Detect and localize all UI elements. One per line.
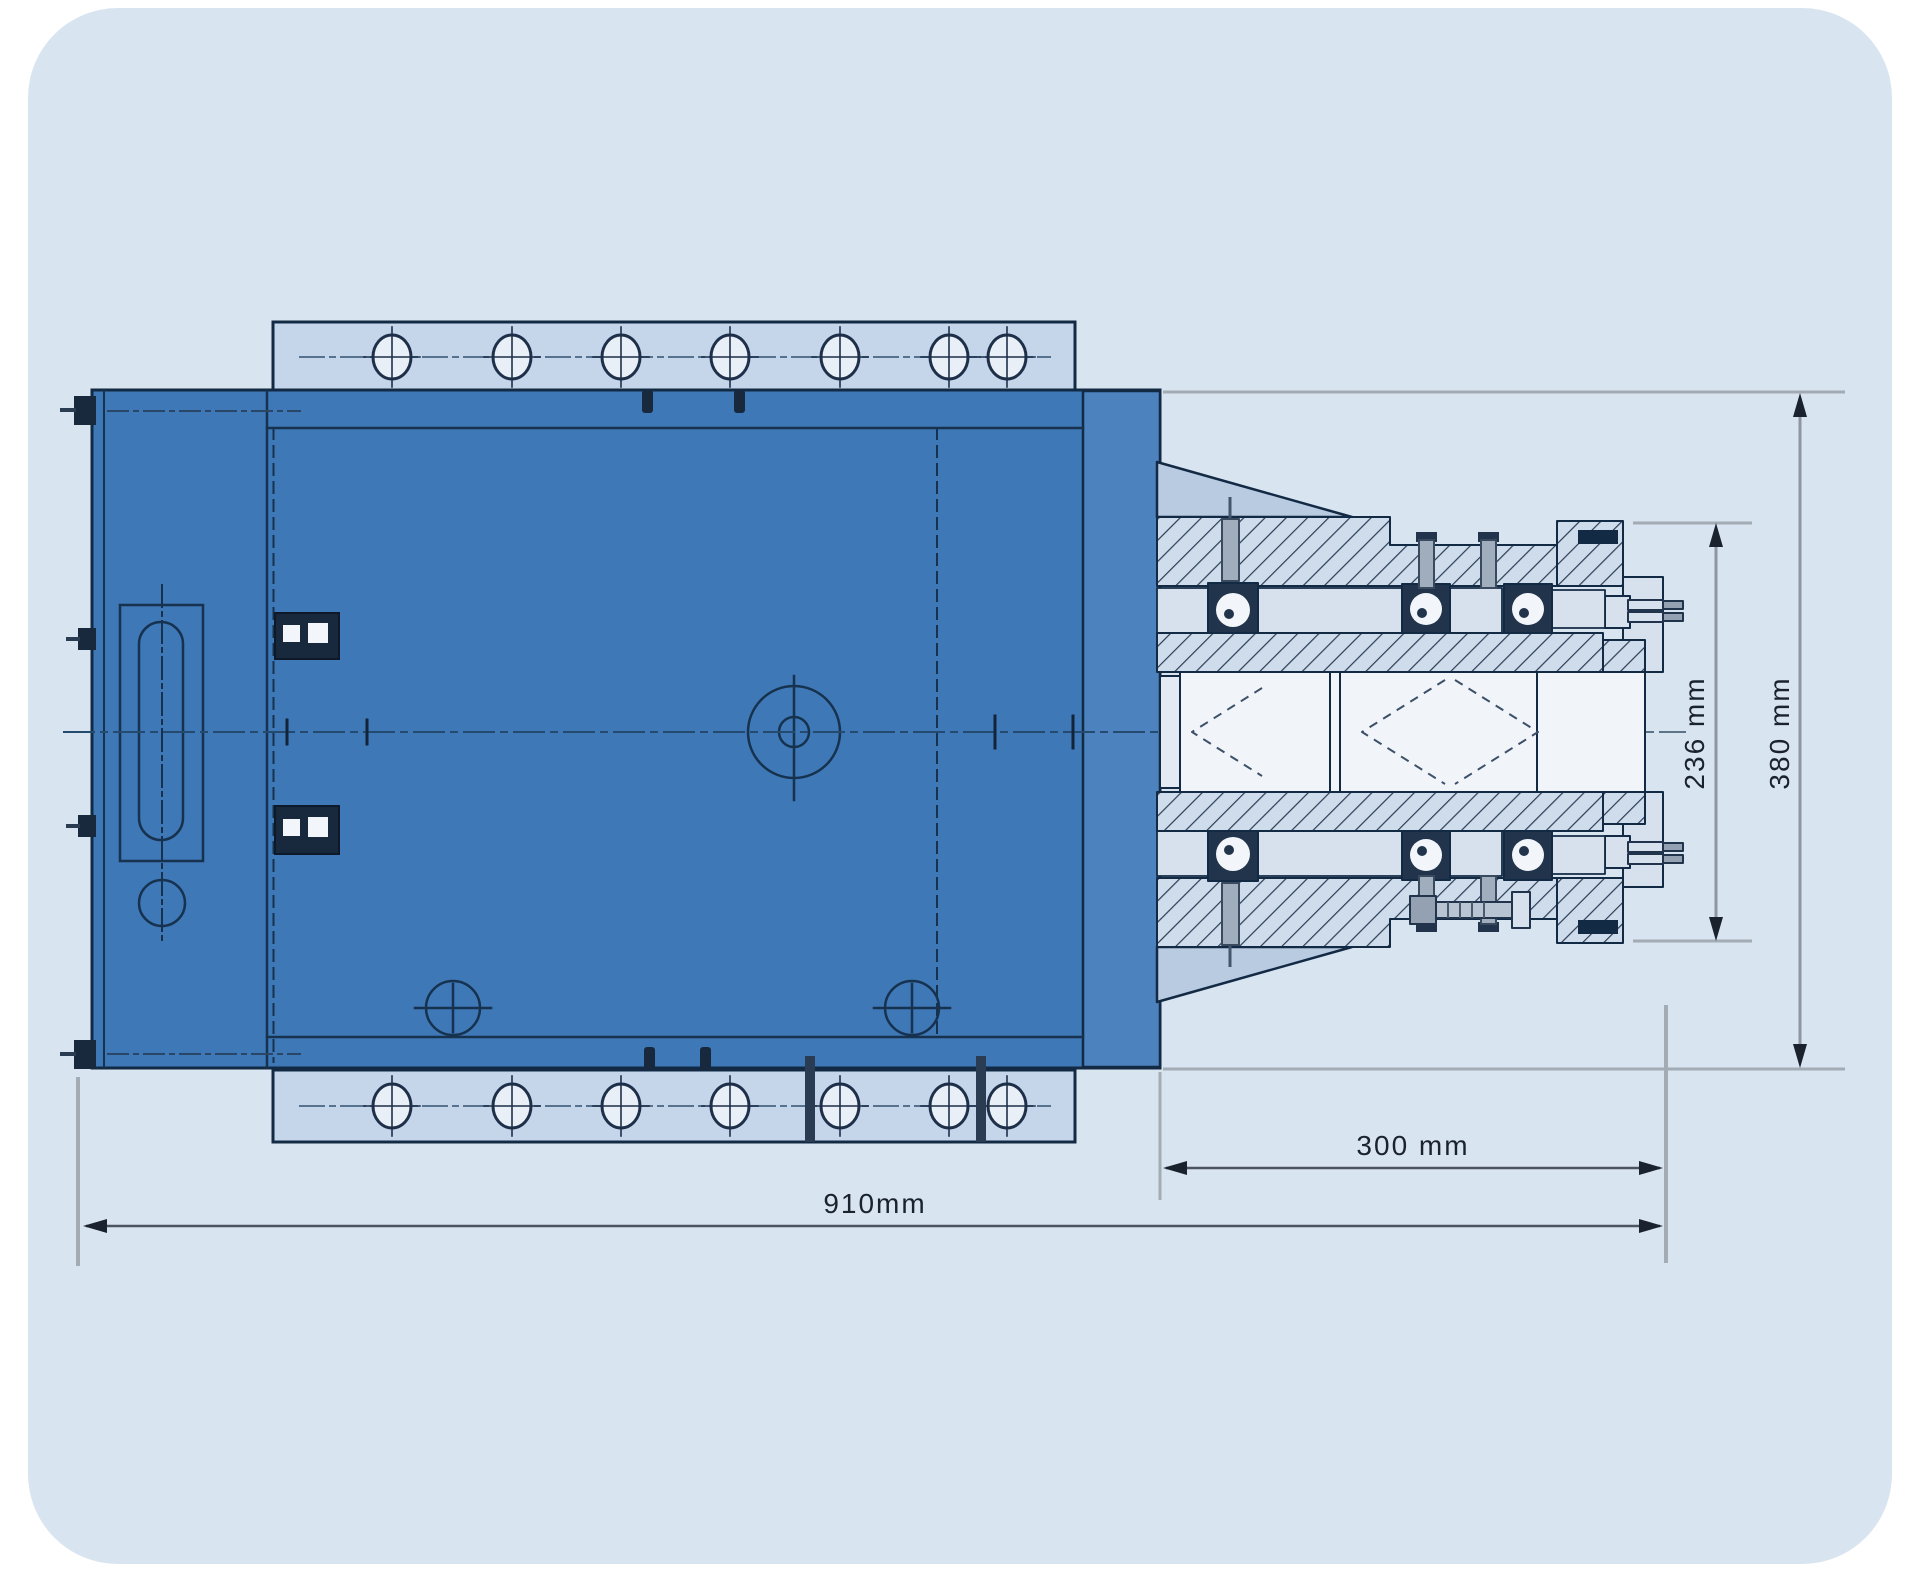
shaft-sleeve-top [1157,633,1603,672]
page: 380 mm 236 mm 300 mm 910mm [0,0,1920,1594]
sleeve-step-bottom [1603,792,1645,824]
sleeve-step-top [1603,640,1645,672]
body-right-band [1083,391,1160,1067]
dim-label-380: 380 mm [1764,676,1795,789]
dim-label-236: 236 mm [1679,676,1710,789]
clamp-block [275,806,339,854]
key-slot-bottom [1578,920,1618,934]
technical-drawing: 380 mm 236 mm 300 mm 910mm [0,0,1920,1594]
bearing [1504,830,1552,880]
dim-label-910: 910mm [823,1188,926,1219]
locknut-top [1605,596,1630,628]
bearing [1402,584,1450,634]
bearing [1504,584,1552,634]
spindle-cross-section [1157,462,1683,1002]
bearing [1402,830,1450,880]
dim-label-300: 300 mm [1356,1130,1469,1161]
bearing [1208,827,1258,881]
shaft-sleeve-bottom [1157,792,1603,831]
locknut-bottom [1605,836,1630,868]
spindle-bore [1160,672,1663,792]
bearing [1208,583,1258,637]
gearbox-body [92,390,1160,1068]
clamp-block [275,613,339,659]
key-slot-top [1578,530,1618,544]
